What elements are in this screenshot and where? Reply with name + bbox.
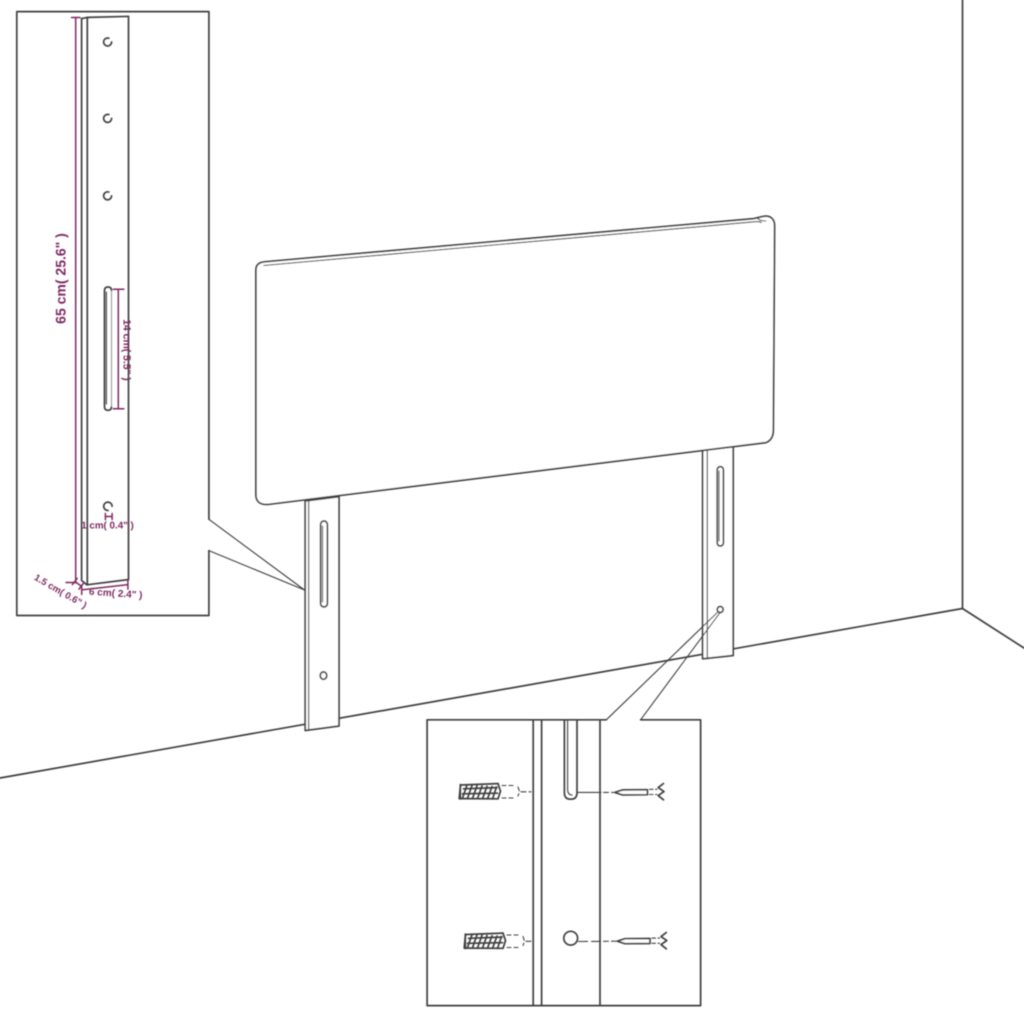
svg-text:1 cm( 0.4" ): 1 cm( 0.4" ) <box>81 521 134 532</box>
svg-text:14 cm( 5.5" ): 14 cm( 5.5" ) <box>120 319 131 381</box>
svg-text:65 cm( 25.6" ): 65 cm( 25.6" ) <box>53 233 69 324</box>
